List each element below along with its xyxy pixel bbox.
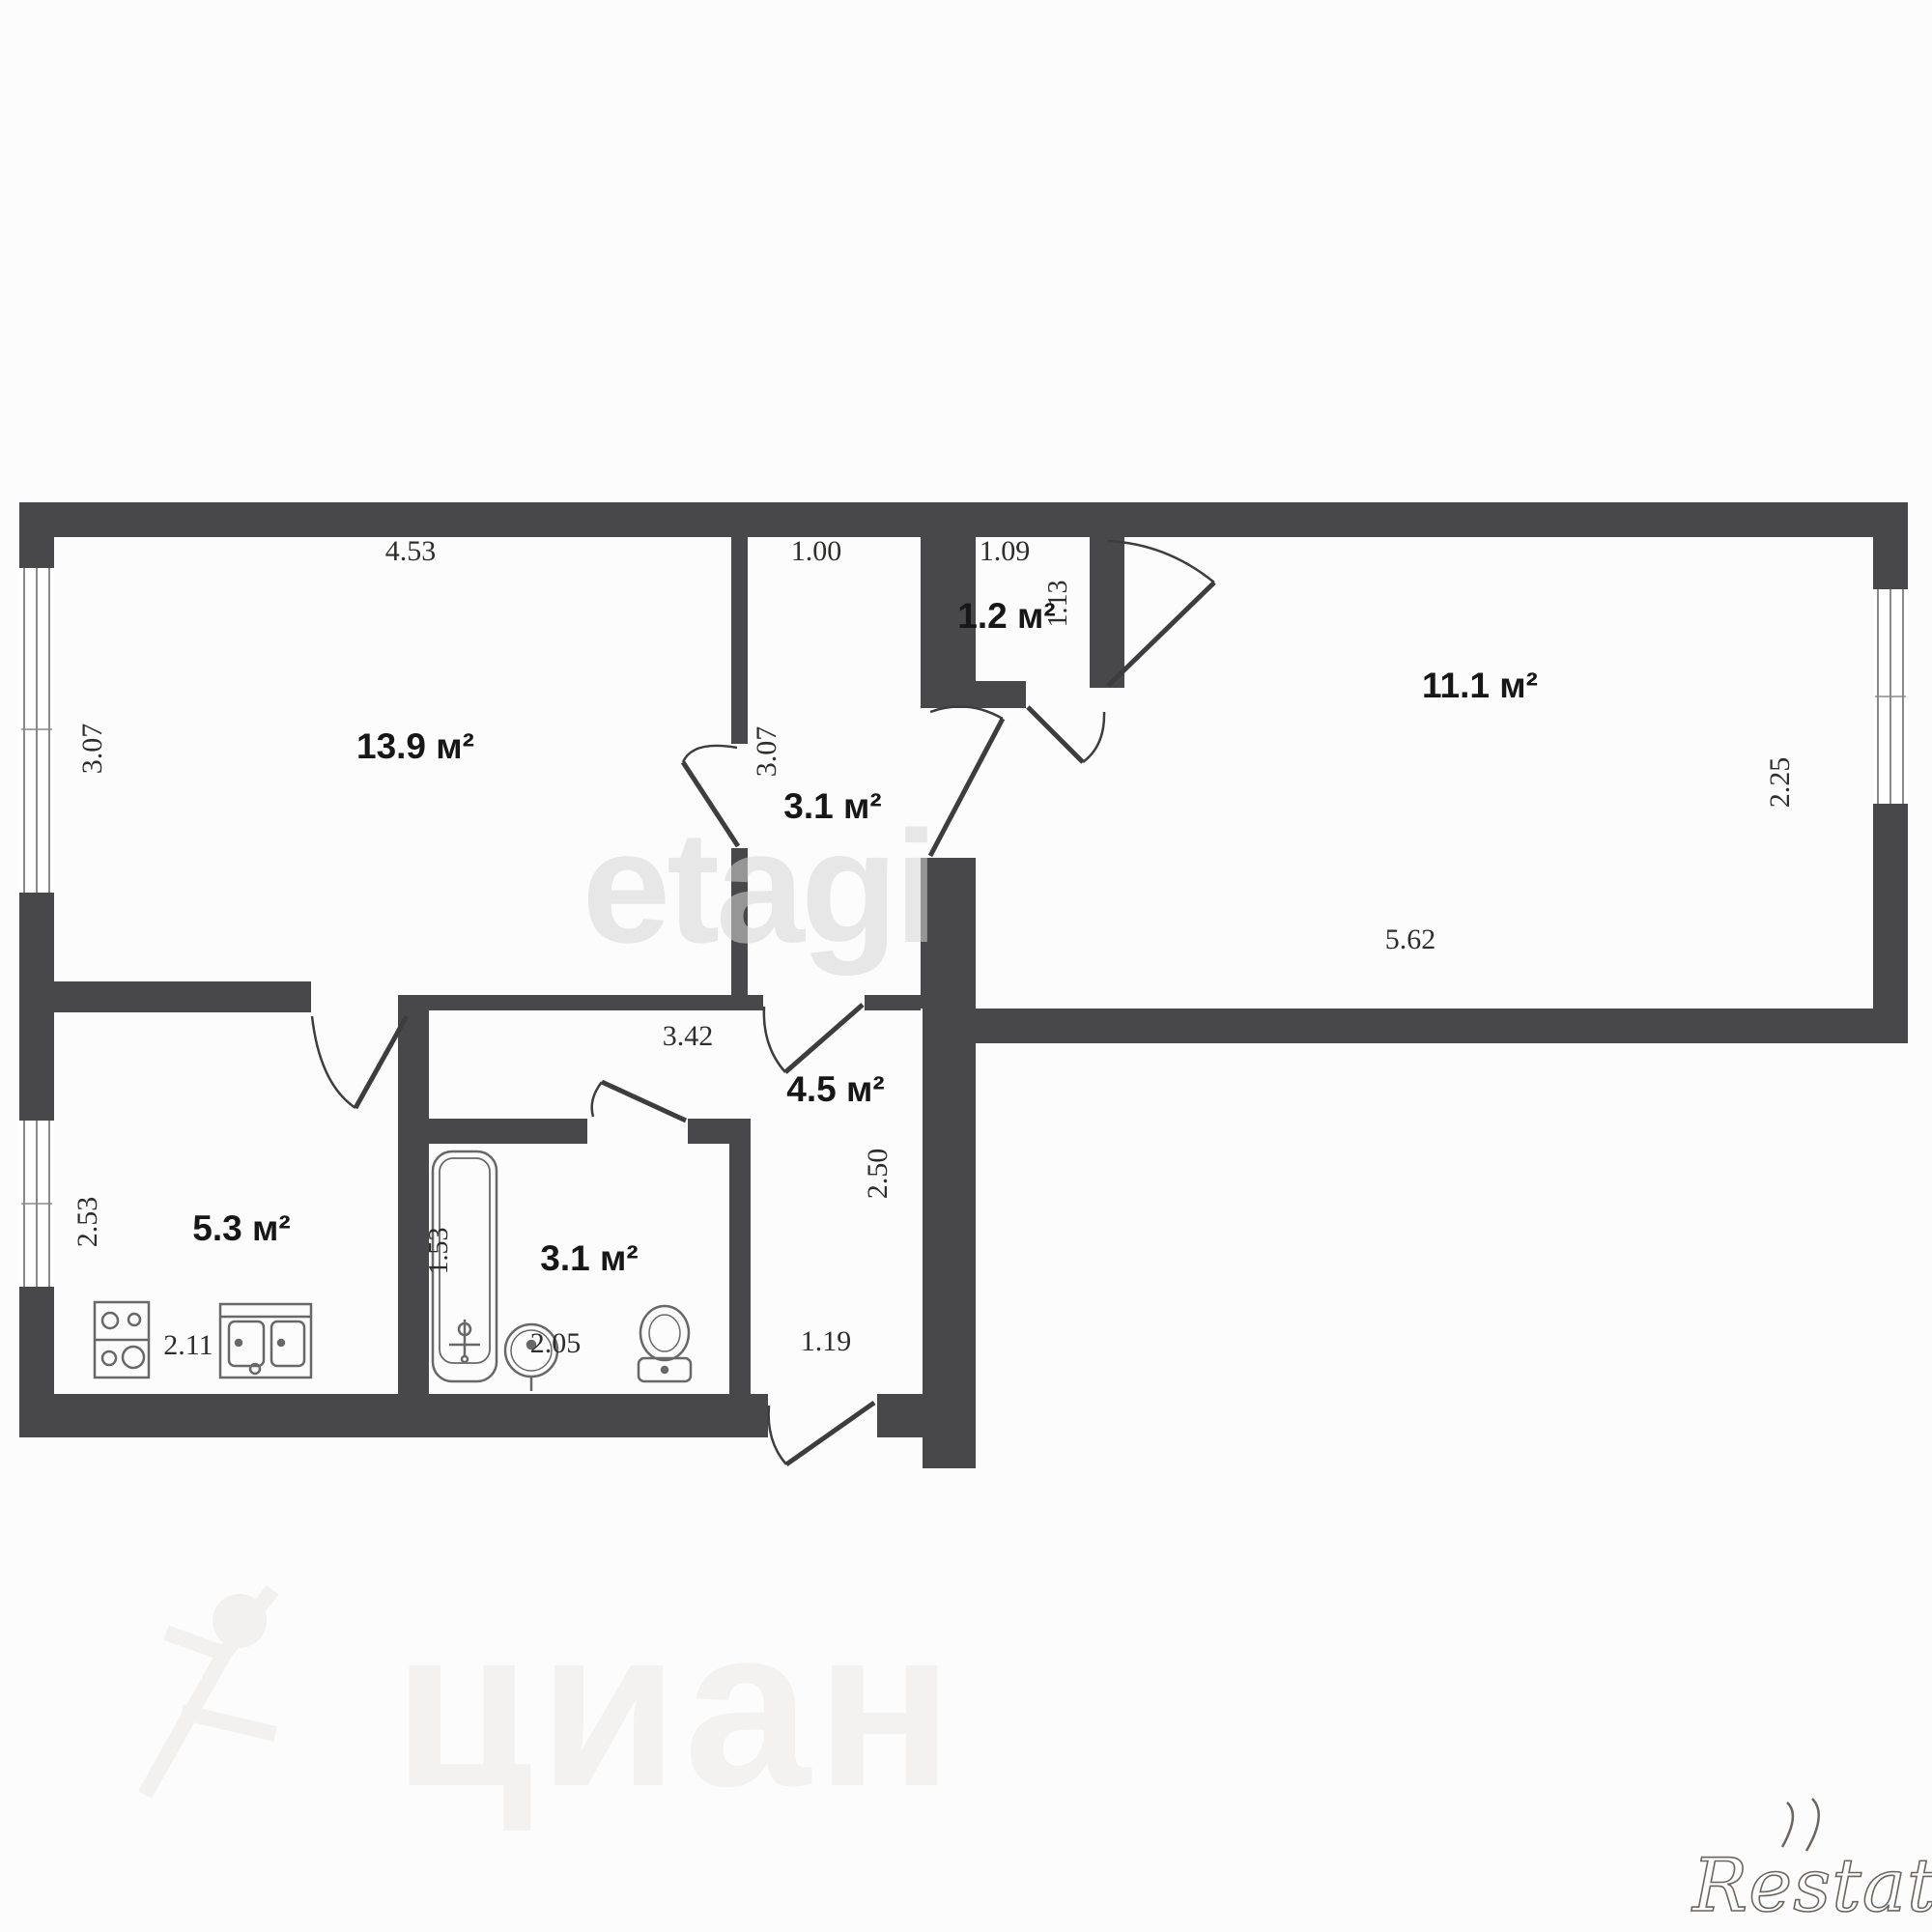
wall-hallway-north-a [398, 995, 763, 1010]
wall-right-upper [1873, 502, 1908, 591]
entry-door-icon [769, 1403, 874, 1464]
dim-bedroom-width: 5.62 [1385, 923, 1436, 955]
dim-bathroom-width: 2.05 [530, 1327, 582, 1359]
dim-living-width: 4.53 [385, 535, 437, 567]
label-storage-area: 1.2 м² [957, 596, 1055, 636]
label-living-area: 13.9 м² [356, 726, 474, 766]
corridor-east-door-icon [930, 706, 1003, 856]
floor-plan-page: 4.53 3.07 1.00 3.07 1.09 1.13 5.62 2.25 … [0, 0, 1932, 1932]
room-bedroom [1124, 537, 1873, 1009]
window-bedroom-icon [1873, 589, 1908, 804]
wall-kitchen-north [54, 981, 311, 1012]
wall-corridor-west-upper [731, 537, 748, 744]
wall-bottom-left [19, 1394, 768, 1437]
label-bathroom-area: 3.1 м² [540, 1238, 638, 1278]
watermark-cian-text: циан [393, 1579, 959, 1833]
dim-kitchen-width: 2.11 [163, 1329, 213, 1361]
wall-bedroom-south [976, 1009, 1908, 1043]
window-living-icon [19, 568, 54, 893]
wall-kitchen-bath [398, 995, 429, 1394]
dim-living-depth: 3.07 [76, 724, 108, 775]
watermark-etagi: etagi [582, 798, 934, 976]
wall-bath-north-b [688, 1119, 729, 1144]
storage-door-icon [1028, 707, 1104, 762]
wall-bath-north-a [429, 1119, 587, 1144]
label-bedroom-area: 11.1 м² [1422, 666, 1538, 705]
restate-logo: Restate [1690, 1799, 1932, 1928]
dim-kitchen-depth: 2.53 [71, 1197, 103, 1248]
dim-hallway-width: 3.42 [663, 1020, 714, 1052]
dim-bedroom-depth: 2.25 [1764, 757, 1796, 809]
wall-left-mid [19, 891, 54, 1122]
dim-hallway-depth: 2.50 [862, 1149, 894, 1200]
cian-figure-icon [145, 1590, 275, 1795]
room-kitchen [54, 1012, 398, 1394]
wall-storage-south-stub [976, 681, 1026, 708]
dim-entry-width: 1.19 [801, 1325, 852, 1357]
wall-left-upper [19, 502, 54, 570]
dim-corridor-depth: 3.07 [751, 726, 782, 778]
wall-hallway-north-b [865, 995, 921, 1010]
dim-corridor-width: 1.00 [791, 535, 842, 567]
window-kitchen-icon [19, 1121, 54, 1287]
wall-hallway-east [923, 1009, 976, 1394]
wall-storage-east [1090, 537, 1124, 688]
floor-plan-drawing: 4.53 3.07 1.00 3.07 1.09 1.13 5.62 2.25 … [0, 0, 1932, 1932]
label-kitchen-area: 5.3 м² [192, 1208, 290, 1248]
restate-logo-text: Restate [1690, 1842, 1932, 1928]
wall-bath-east [729, 1119, 751, 1394]
dim-storage-width: 1.09 [980, 535, 1031, 567]
bathroom-door-icon [592, 1082, 686, 1121]
label-hallway-area: 4.5 м² [786, 1069, 884, 1109]
watermark-cian: циан [145, 1579, 959, 1833]
dim-bathtub-length: 1.53 [424, 1228, 454, 1275]
wall-right-lower [1873, 802, 1908, 1043]
wall-top [19, 502, 1908, 537]
wall-bottom-corner-block [923, 1394, 976, 1468]
